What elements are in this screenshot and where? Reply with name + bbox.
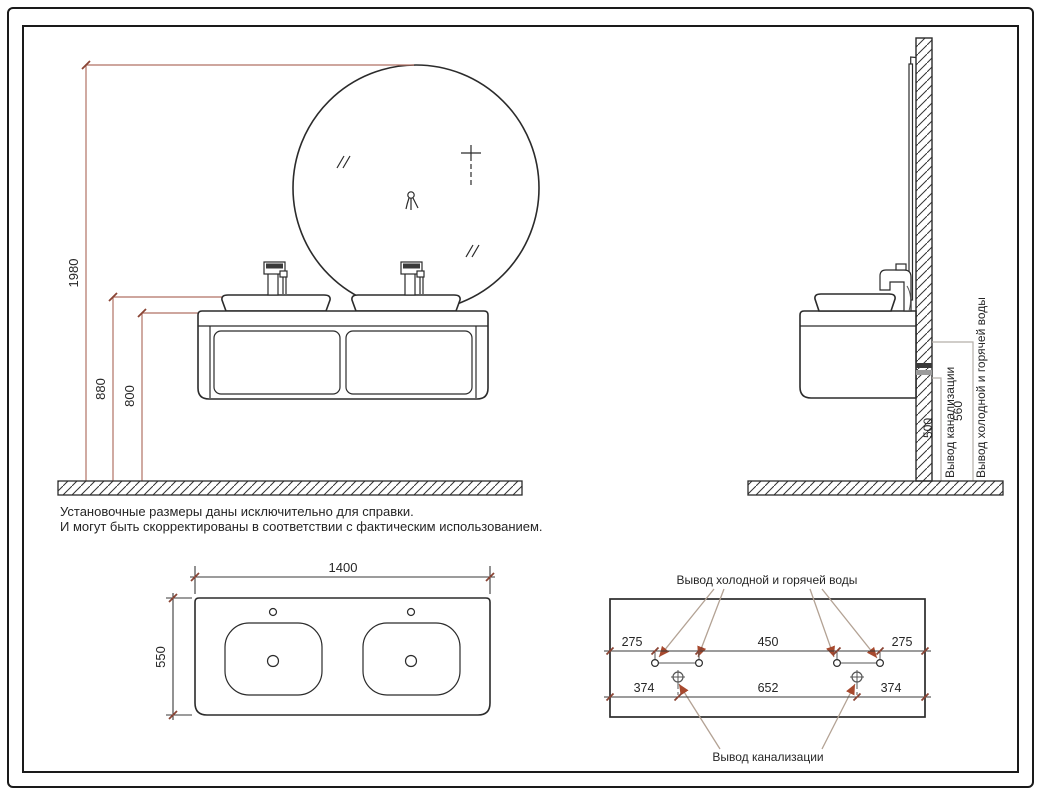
vanity-cabinet-front xyxy=(198,311,488,399)
faucet-left xyxy=(264,262,287,295)
note-line-1: Установочные размеры даны исключительно … xyxy=(60,504,414,519)
water-outlet-label-side: Вывод холодной и горячей воды xyxy=(974,297,988,478)
floor-side xyxy=(748,481,1003,495)
mirror-hanger-icon xyxy=(406,192,418,210)
side-view: 560 Вывод холодной и горячей воды 500 Вы… xyxy=(748,38,1003,495)
countertop-outline xyxy=(195,598,490,715)
dim-water-center: 450 xyxy=(758,635,779,649)
floor-front xyxy=(58,481,522,495)
dim-water-right: 275 xyxy=(892,635,913,649)
drawing-svg: 1980 880 800 xyxy=(0,0,1042,800)
dim-countertop-width-value: 1400 xyxy=(329,560,358,575)
dim-countertop-depth-value: 550 xyxy=(153,646,168,668)
dim-550: 550 xyxy=(153,593,192,720)
wall-plumbing-layout: Вывод холодной и горячей воды xyxy=(604,573,931,764)
mirror-side xyxy=(909,57,916,300)
water-outlets-title: Вывод холодной и горячей воды xyxy=(677,573,858,587)
dim-row-sewer: 374 652 374 xyxy=(604,681,931,701)
inner-border xyxy=(23,26,1018,772)
dim-sewer-height-value: 500 xyxy=(921,418,935,438)
note-line-2: И могут быть скорректированы в соответст… xyxy=(60,519,543,534)
dim-sink-height-value: 880 xyxy=(93,378,108,400)
mirror-reflection-marks xyxy=(337,156,479,257)
sewer-outlet-label-side: Вывод канализации xyxy=(943,367,957,478)
vessel-sinks-front xyxy=(222,295,460,311)
top-view: 1400 550 xyxy=(153,560,495,720)
vanity-cabinet-side xyxy=(800,311,916,398)
faucet-right xyxy=(401,262,424,295)
wall-panel-outline xyxy=(610,599,925,717)
vessel-sink-side xyxy=(815,294,895,311)
sewer-outlets-title: Вывод канализации xyxy=(712,750,823,764)
dim-row-water: 275 450 275 xyxy=(604,635,931,660)
dim-1400: 1400 xyxy=(190,560,495,594)
water-outlet-points xyxy=(652,660,884,667)
dim-cabinet-height-value: 800 xyxy=(122,385,137,407)
dim-800: 800 xyxy=(122,309,198,481)
dim-total-height-value: 1980 xyxy=(66,259,81,288)
dim-water-left: 275 xyxy=(622,635,643,649)
dim-sewer-right: 374 xyxy=(881,681,902,695)
wall-section xyxy=(916,38,932,481)
dim-sewer-left: 374 xyxy=(634,681,655,695)
dim-sewer-center: 652 xyxy=(758,681,779,695)
dim-1980: 1980 xyxy=(66,61,414,481)
mirror-center-mark xyxy=(461,145,481,186)
installation-drawing-sheet: 1980 880 800 xyxy=(0,0,1042,800)
note-text: Установочные размеры даны исключительно … xyxy=(60,504,543,534)
front-view: 1980 880 800 xyxy=(58,61,539,495)
